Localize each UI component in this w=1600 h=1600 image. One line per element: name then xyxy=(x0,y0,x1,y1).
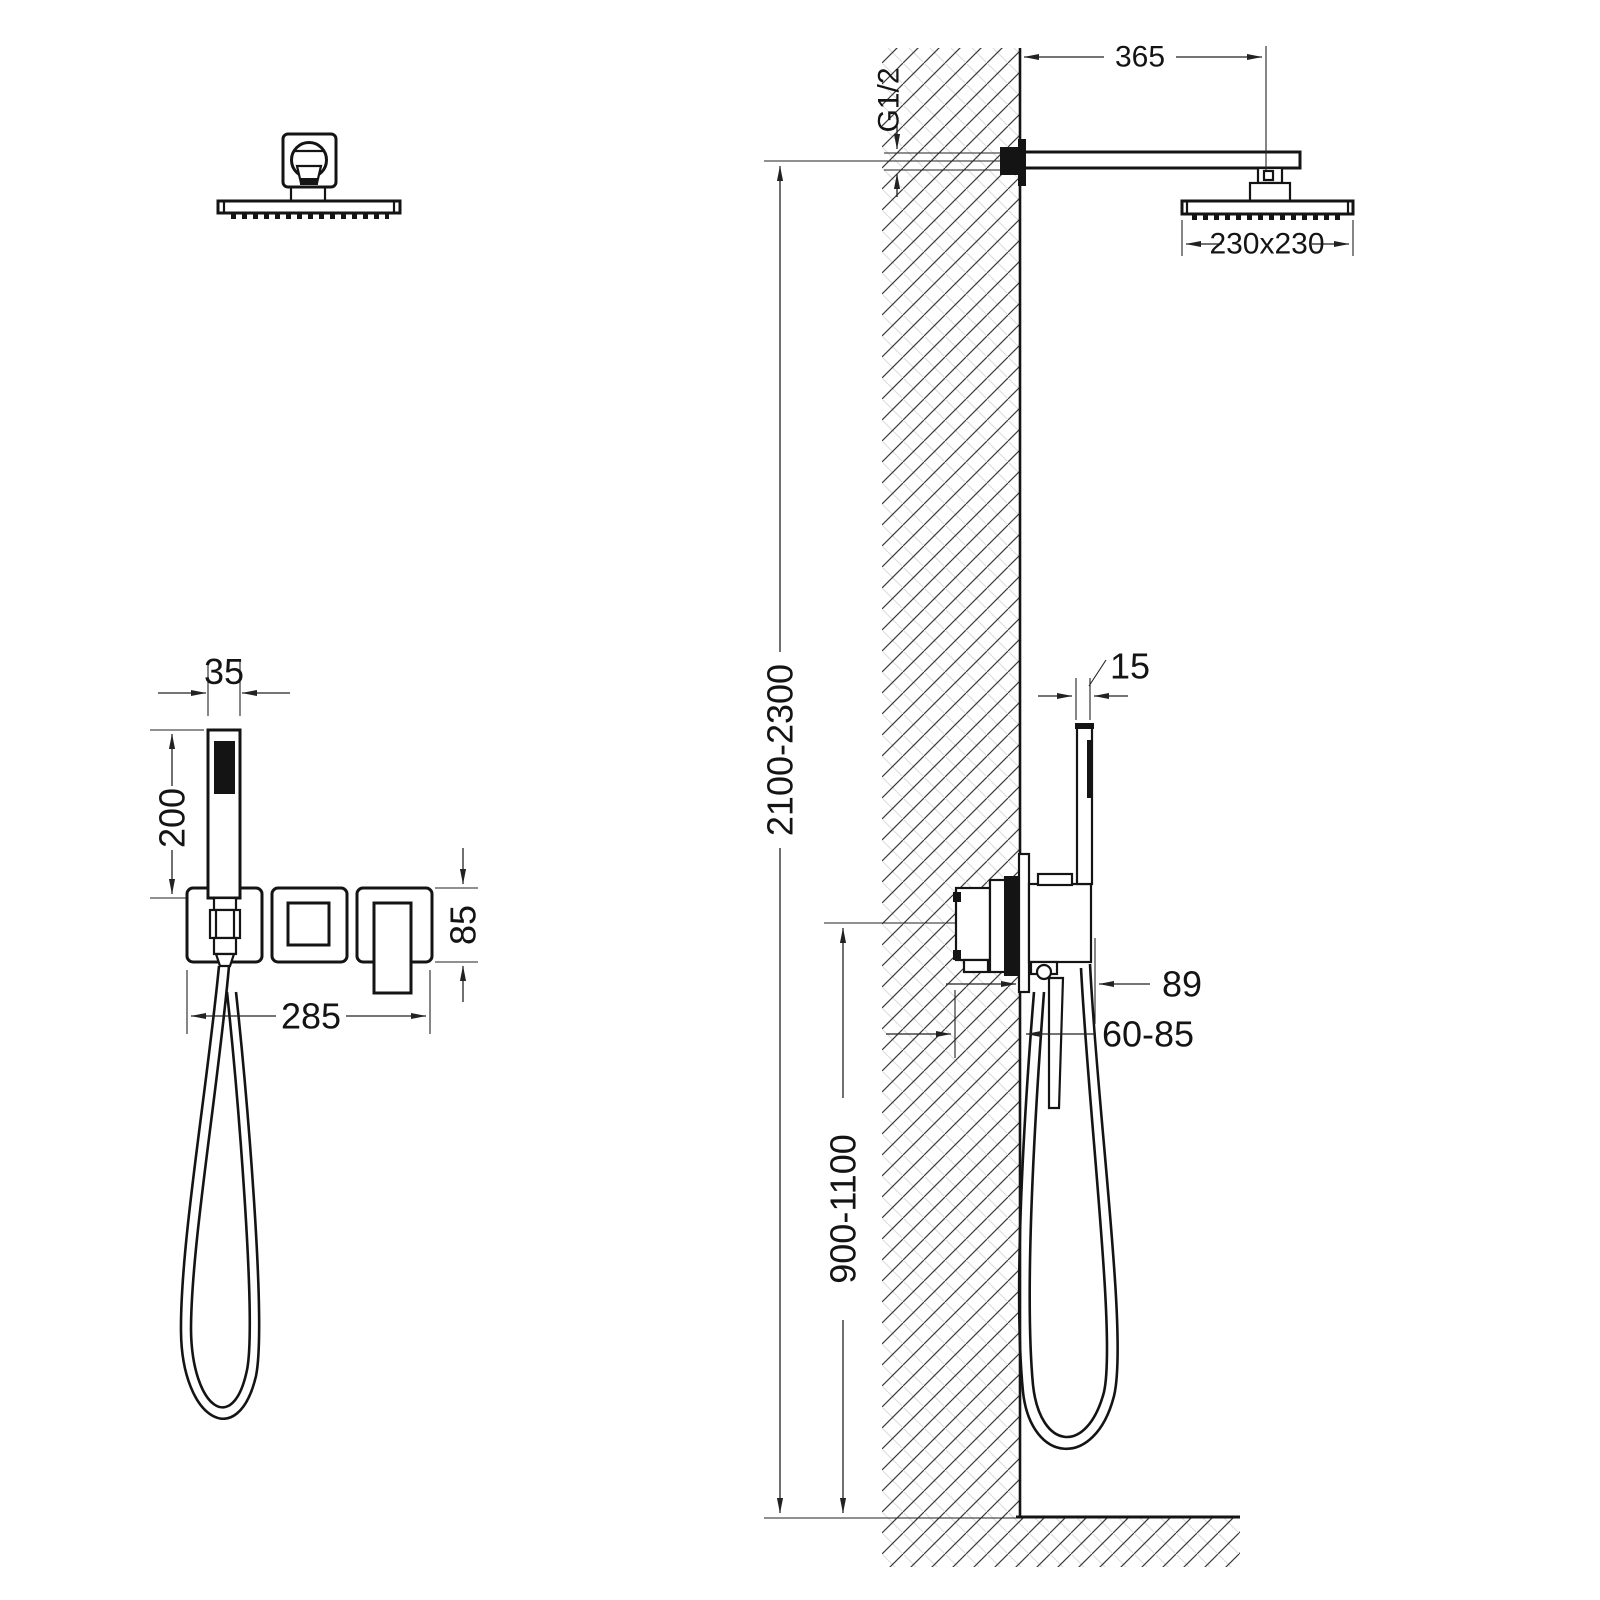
technical-drawing-canvas: 35 200 285 8 xyxy=(0,0,1600,1600)
side-view-overhead-shower: 365 G1/2 230x230 xyxy=(764,41,1353,261)
embedded-valve-body xyxy=(956,888,990,960)
shower-arm xyxy=(1022,152,1300,168)
wall-section-hatch xyxy=(882,48,1020,1517)
floor-section-hatch xyxy=(882,1517,1240,1567)
dim-hand-shower-length: 200 xyxy=(152,788,193,848)
joint-nut xyxy=(300,178,318,185)
mixer-lever xyxy=(374,903,411,993)
dim-head-size: 230x230 xyxy=(1209,228,1324,261)
mixer-lever-side xyxy=(1049,978,1063,1108)
dim-hand-shower-depth: 15 xyxy=(1110,646,1150,687)
shower-head-plate xyxy=(218,201,400,213)
rain-head-side xyxy=(1182,201,1353,214)
dim-valve-height: 900-1100 xyxy=(823,1134,864,1283)
dim-trim-height: 85 xyxy=(443,905,484,945)
hand-shower-spray-window xyxy=(214,741,235,794)
front-view-hand-shower-trim: 35 200 285 8 xyxy=(150,651,484,1419)
dim-thread: G1/2 xyxy=(873,67,906,132)
drawing-svg: 35 200 285 8 xyxy=(0,0,1600,1600)
dim-hand-shower-width: 35 xyxy=(204,651,244,692)
dim-projection: 89 xyxy=(1162,964,1202,1005)
escutcheon-plate xyxy=(1019,854,1029,992)
side-view-height-dims: 2100-2300 900-1100 xyxy=(760,166,864,1513)
side-view-wall xyxy=(764,48,1240,1567)
dim-embed-depth: 60-85 xyxy=(1102,1014,1194,1055)
hand-shower-holder xyxy=(210,910,240,938)
dim-arm-length: 365 xyxy=(1115,41,1165,74)
valve-trim-body xyxy=(1029,884,1091,962)
dim-install-height: 2100-2300 xyxy=(760,664,801,836)
dim-trim-width: 285 xyxy=(281,996,341,1037)
diverter-button xyxy=(288,903,329,945)
front-view-overhead-shower xyxy=(218,134,400,216)
